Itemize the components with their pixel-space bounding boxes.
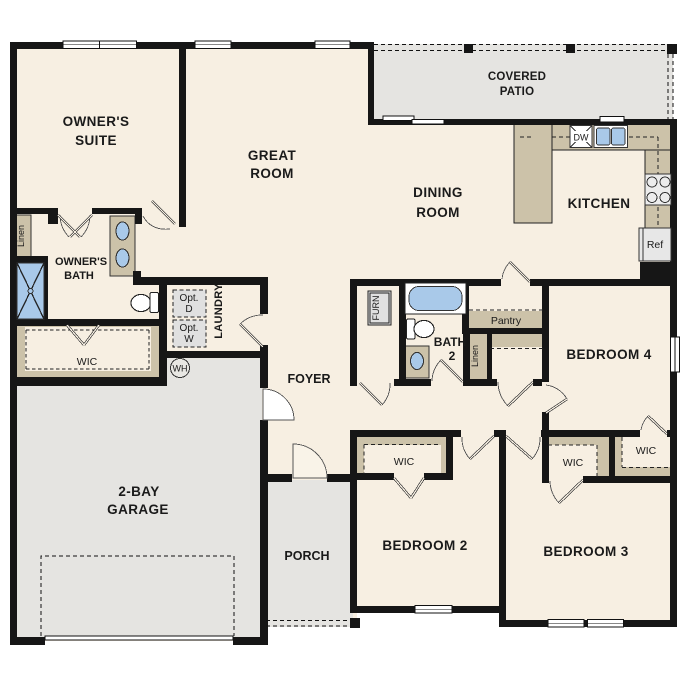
svg-text:2: 2	[449, 349, 456, 363]
svg-text:Pantry: Pantry	[491, 315, 522, 327]
svg-text:BATH: BATH	[434, 335, 466, 349]
svg-text:Ref: Ref	[647, 239, 663, 251]
svg-text:COVERED: COVERED	[488, 71, 546, 83]
svg-text:LAUNDRY: LAUNDRY	[213, 283, 225, 339]
svg-text:OWNER'S: OWNER'S	[55, 256, 107, 268]
svg-text:KITCHEN: KITCHEN	[568, 196, 631, 211]
svg-text:WIC: WIC	[394, 456, 415, 468]
svg-text:PORCH: PORCH	[284, 549, 329, 563]
svg-text:BEDROOM 3: BEDROOM 3	[543, 544, 628, 559]
svg-text:D: D	[185, 304, 192, 315]
svg-text:FOYER: FOYER	[287, 372, 330, 386]
svg-text:WIC: WIC	[636, 445, 657, 457]
svg-text:Opt.: Opt.	[180, 323, 199, 334]
svg-text:GREAT: GREAT	[248, 148, 297, 163]
svg-text:GARAGE: GARAGE	[107, 502, 169, 517]
svg-text:PATIO: PATIO	[500, 86, 534, 98]
svg-text:WIC: WIC	[77, 356, 98, 368]
svg-text:SUITE: SUITE	[75, 133, 117, 148]
svg-text:BATH: BATH	[64, 270, 94, 282]
svg-text:DW: DW	[574, 133, 589, 143]
svg-text:Linen: Linen	[470, 345, 480, 367]
svg-text:WIC: WIC	[563, 457, 584, 469]
svg-text:Opt.: Opt.	[180, 293, 199, 304]
svg-text:BEDROOM 4: BEDROOM 4	[566, 347, 651, 362]
svg-text:WH: WH	[173, 364, 188, 374]
svg-text:DINING: DINING	[413, 185, 463, 200]
svg-text:Linen: Linen	[16, 225, 26, 247]
svg-text:BEDROOM 2: BEDROOM 2	[382, 538, 467, 553]
svg-text:ROOM: ROOM	[250, 166, 294, 181]
svg-text:FURN: FURN	[371, 296, 381, 321]
svg-text:2-BAY: 2-BAY	[118, 484, 159, 499]
svg-text:ROOM: ROOM	[416, 205, 460, 220]
svg-text:W: W	[184, 334, 194, 345]
svg-text:OWNER'S: OWNER'S	[63, 114, 130, 129]
